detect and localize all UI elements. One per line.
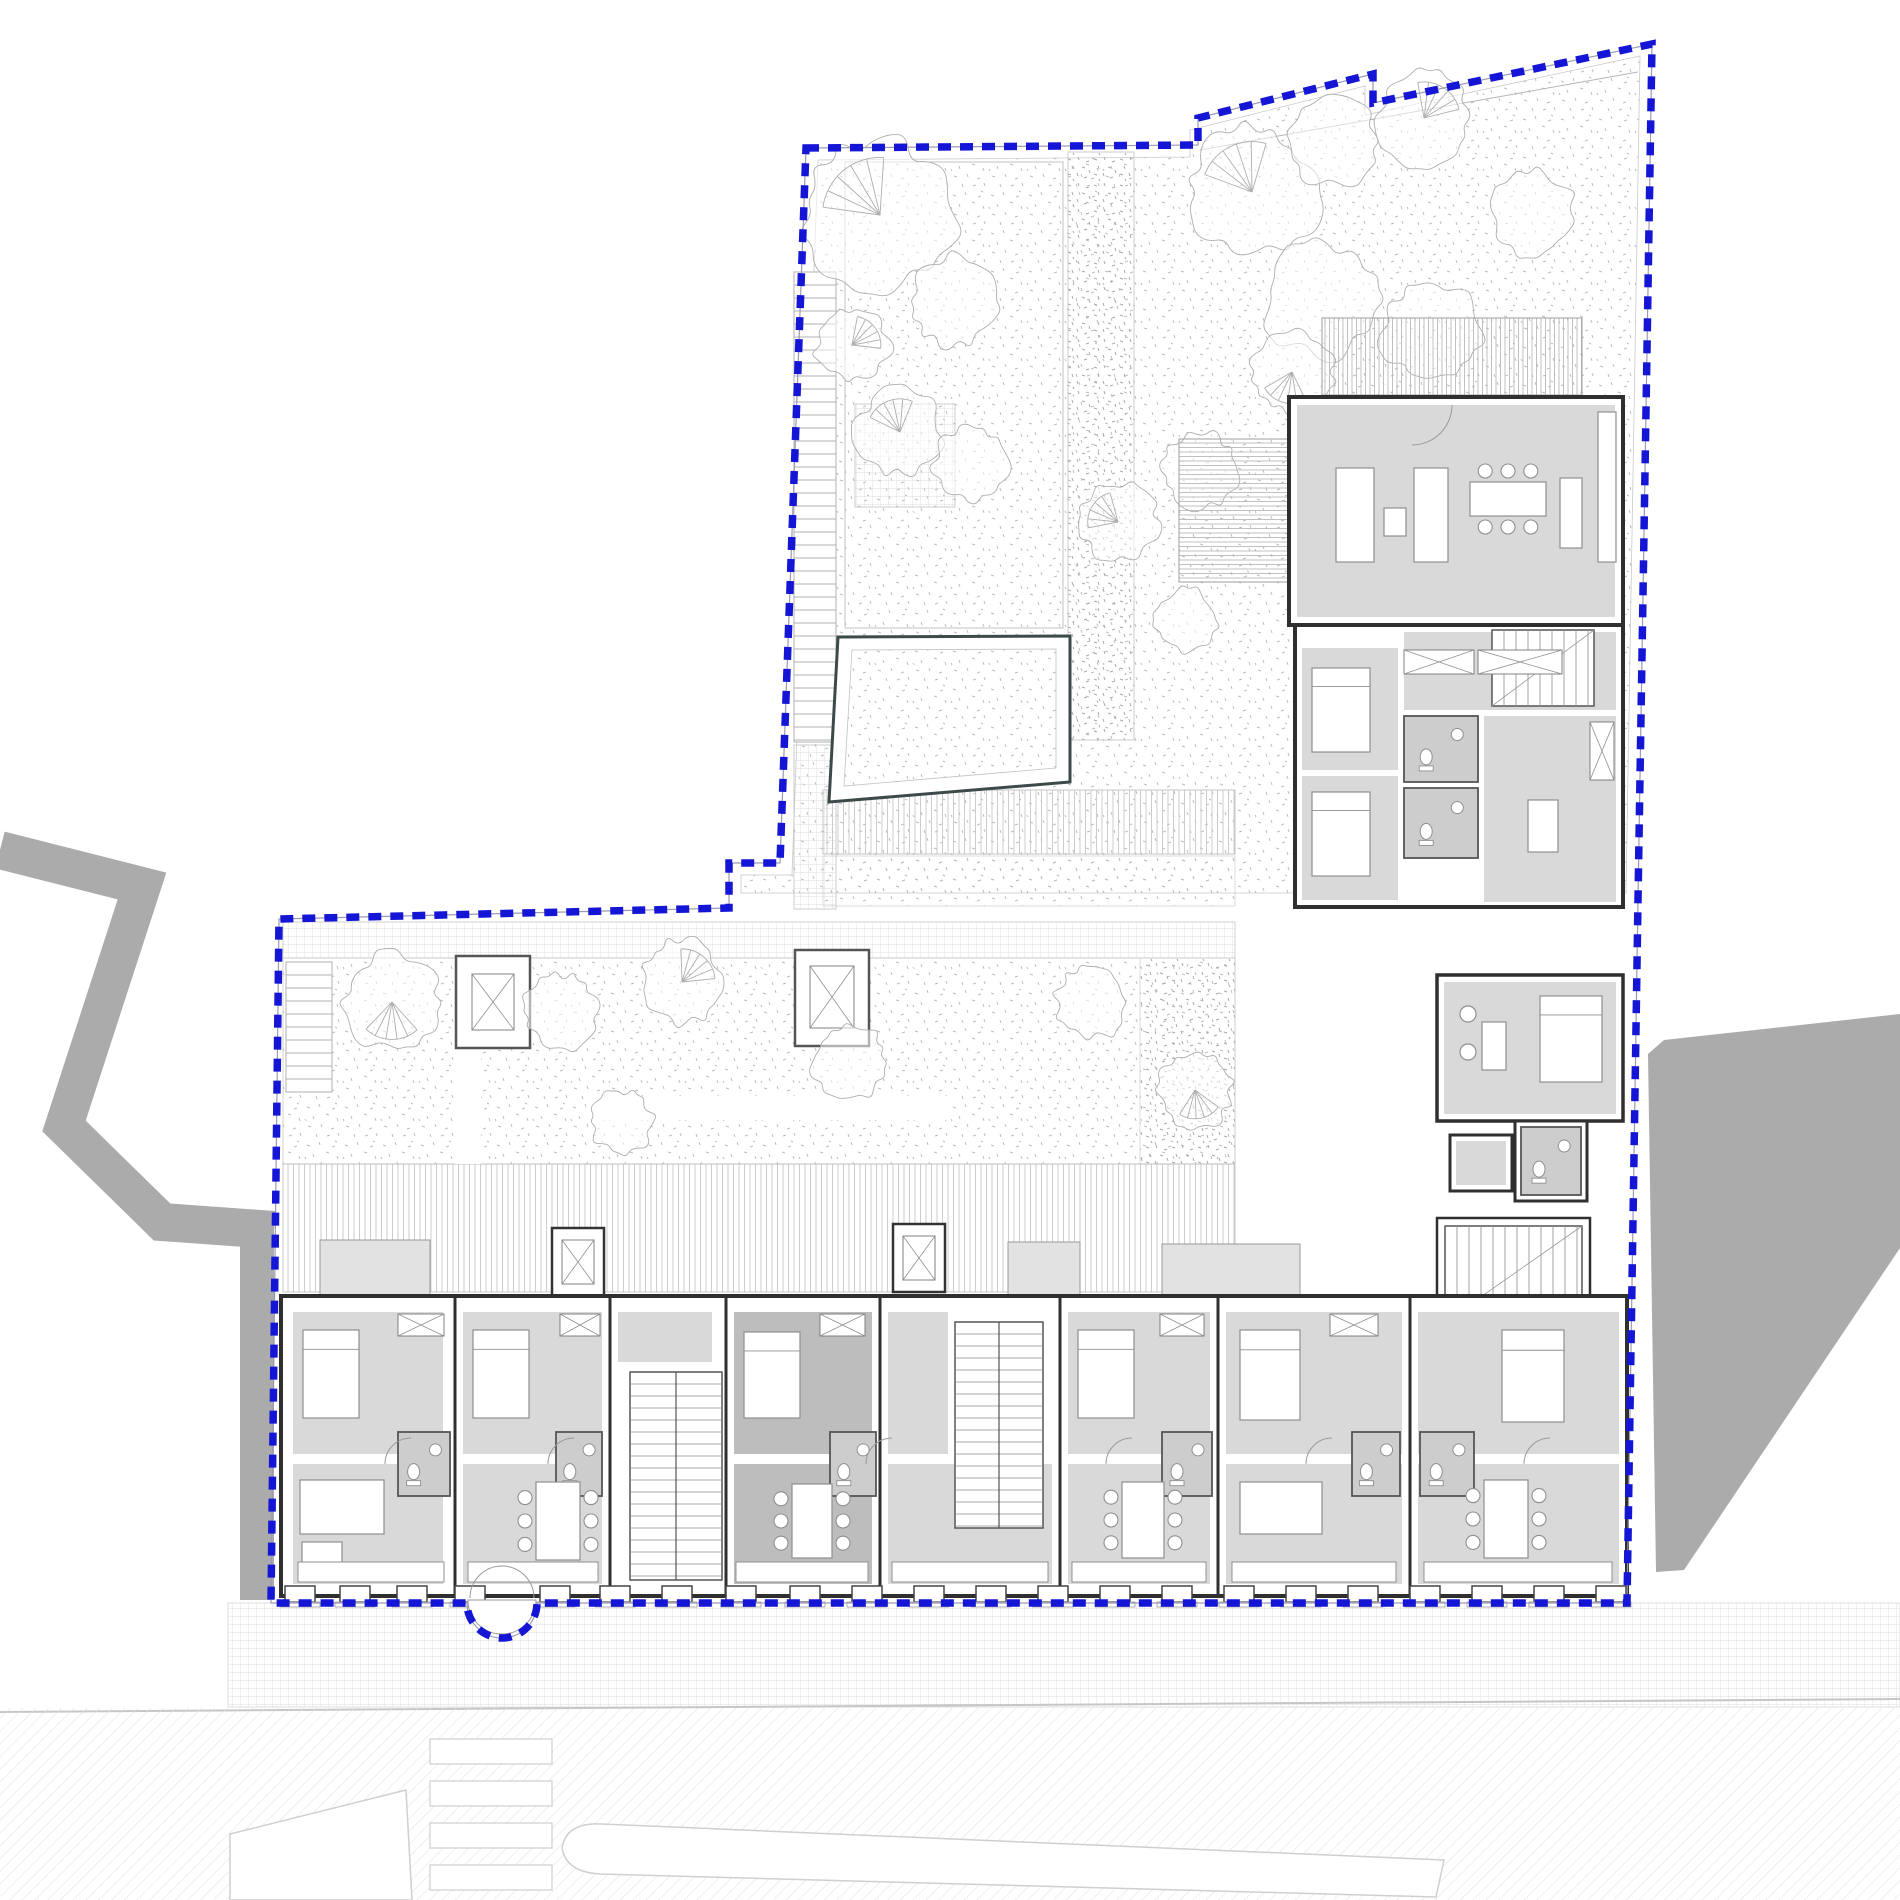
stairwell-1 bbox=[630, 1372, 722, 1580]
toilet-tank bbox=[1429, 1481, 1443, 1486]
wardrobe bbox=[398, 1314, 444, 1336]
bath-room bbox=[830, 1432, 876, 1496]
bed bbox=[744, 1332, 800, 1418]
bed-frame bbox=[1240, 1330, 1300, 1420]
bed bbox=[1240, 1330, 1300, 1420]
crosswalk-stripe bbox=[430, 1781, 552, 1806]
bed-frame bbox=[1540, 996, 1602, 1082]
counter bbox=[892, 1562, 1048, 1582]
stool bbox=[774, 1514, 788, 1528]
stool bbox=[1478, 520, 1492, 534]
stool bbox=[518, 1491, 532, 1505]
room bbox=[888, 1312, 948, 1454]
stool bbox=[1501, 520, 1515, 534]
unit-chair1 bbox=[1460, 1006, 1476, 1022]
villa-sofa2 bbox=[1414, 468, 1448, 562]
sink bbox=[1192, 1444, 1204, 1456]
villa-bed1-bed bbox=[1312, 668, 1370, 752]
tower-a-shaft bbox=[562, 1240, 594, 1284]
dining-table bbox=[518, 1482, 598, 1560]
bed-frame bbox=[744, 1332, 800, 1418]
sofa bbox=[300, 1480, 384, 1534]
bath-room bbox=[1162, 1432, 1212, 1496]
stairwell-2 bbox=[955, 1322, 1043, 1528]
stool bbox=[1466, 1535, 1480, 1549]
bed bbox=[1078, 1330, 1134, 1418]
patio-a bbox=[320, 1240, 430, 1297]
stool bbox=[836, 1514, 850, 1528]
sidewalk-band-mid bbox=[283, 922, 1235, 958]
sink bbox=[583, 1444, 595, 1456]
stool bbox=[518, 1537, 532, 1551]
wardrobe bbox=[820, 1314, 865, 1336]
bed bbox=[473, 1330, 529, 1418]
sink bbox=[857, 1444, 869, 1456]
crosswalk-stripe bbox=[430, 1823, 552, 1848]
stool bbox=[774, 1536, 788, 1550]
stool bbox=[1466, 1489, 1480, 1503]
unit-bath bbox=[1521, 1127, 1581, 1195]
stool bbox=[1104, 1513, 1118, 1527]
unit-table bbox=[1482, 1022, 1506, 1070]
elevator-a bbox=[472, 974, 514, 1030]
villa-dining bbox=[1470, 464, 1546, 534]
villa-north-deck bbox=[1322, 318, 1582, 395]
villa-sofa1 bbox=[1336, 468, 1374, 562]
villa-island bbox=[1560, 478, 1582, 548]
villa-bath2 bbox=[1404, 788, 1478, 858]
toilet bbox=[1420, 749, 1432, 765]
counter bbox=[1424, 1562, 1612, 1582]
crosswalk-stripe bbox=[430, 1739, 552, 1764]
wardrobe bbox=[1330, 1314, 1378, 1336]
sink bbox=[1453, 1444, 1465, 1456]
toilet-tank bbox=[1419, 766, 1433, 771]
sofa bbox=[1240, 1482, 1322, 1534]
bath-room bbox=[398, 1432, 450, 1496]
table-top bbox=[1484, 1480, 1528, 1558]
villa-bath1 bbox=[1404, 716, 1478, 782]
bed-frame bbox=[1312, 792, 1370, 876]
layer-mid-unit bbox=[1437, 975, 1623, 1330]
stool bbox=[1524, 464, 1538, 478]
bed-frame bbox=[473, 1330, 529, 1418]
villa-table3 bbox=[1528, 800, 1558, 852]
toilet bbox=[1430, 1464, 1442, 1480]
bed bbox=[303, 1330, 359, 1418]
layer-street bbox=[0, 1603, 1900, 1900]
bed-frame bbox=[1312, 668, 1370, 752]
stool bbox=[1532, 1489, 1546, 1503]
stool bbox=[836, 1492, 850, 1506]
stool bbox=[1532, 1535, 1546, 1549]
stool bbox=[584, 1491, 598, 1505]
toilet bbox=[1360, 1464, 1372, 1480]
stool bbox=[584, 1514, 598, 1528]
stool bbox=[518, 1514, 532, 1528]
floor-plan-viewport bbox=[0, 0, 1900, 1900]
crosswalk-stripe bbox=[430, 1865, 552, 1890]
patio-b bbox=[1008, 1242, 1080, 1297]
tower-b-shaft bbox=[903, 1236, 935, 1280]
unit-bed bbox=[1540, 996, 1602, 1082]
toilet bbox=[838, 1464, 850, 1480]
toilet bbox=[408, 1464, 420, 1480]
wardrobe bbox=[560, 1314, 600, 1336]
toilet-tank bbox=[407, 1481, 421, 1486]
counter bbox=[468, 1562, 598, 1582]
sink bbox=[429, 1444, 441, 1456]
toilet bbox=[1171, 1464, 1183, 1480]
bathroom bbox=[830, 1432, 876, 1496]
villa-ward2 bbox=[1478, 650, 1562, 674]
bed-frame bbox=[1078, 1330, 1134, 1418]
unit-side-room bbox=[1456, 1141, 1506, 1185]
bath-room bbox=[1352, 1432, 1400, 1496]
deck-band bbox=[823, 790, 1235, 854]
dining-table bbox=[1104, 1482, 1182, 1558]
unit-chair2 bbox=[1460, 1044, 1476, 1060]
villa-bed2-bed bbox=[1312, 792, 1370, 876]
bathroom bbox=[398, 1432, 450, 1496]
gravel-path bbox=[1068, 152, 1134, 740]
gravel-band bbox=[823, 856, 1235, 906]
bed-frame bbox=[1502, 1330, 1564, 1422]
table-top bbox=[1122, 1482, 1164, 1558]
room bbox=[618, 1312, 712, 1362]
villa-ward3 bbox=[1590, 722, 1614, 780]
stool bbox=[1168, 1490, 1182, 1504]
stool bbox=[1104, 1536, 1118, 1550]
villa-ward1 bbox=[1404, 650, 1474, 674]
toilet-tank bbox=[837, 1481, 851, 1486]
garden-steps bbox=[286, 962, 332, 1092]
bathroom bbox=[1420, 1432, 1474, 1496]
pond-inner bbox=[844, 649, 1056, 786]
toilet bbox=[1420, 823, 1432, 839]
stool bbox=[1466, 1512, 1480, 1526]
villa-west-deck bbox=[1179, 439, 1289, 582]
bathroom bbox=[1162, 1432, 1212, 1496]
bed-frame bbox=[303, 1330, 359, 1418]
bed bbox=[1502, 1330, 1564, 1422]
dining-table bbox=[1466, 1480, 1546, 1558]
counter bbox=[1072, 1562, 1206, 1582]
table-top bbox=[1470, 482, 1546, 516]
counter bbox=[736, 1562, 868, 1582]
stool bbox=[774, 1492, 788, 1506]
patio-c bbox=[1162, 1244, 1300, 1297]
bathroom bbox=[1352, 1432, 1400, 1496]
dining-table bbox=[774, 1484, 850, 1558]
stool bbox=[1168, 1513, 1182, 1527]
site-plan-canvas bbox=[0, 0, 1900, 1900]
counter bbox=[298, 1562, 444, 1582]
bath-room bbox=[1420, 1432, 1474, 1496]
stool bbox=[1501, 464, 1515, 478]
road-east bbox=[1648, 1014, 1900, 1572]
toilet-tank bbox=[1359, 1481, 1373, 1486]
plan-layers bbox=[0, 44, 1900, 1900]
wardrobe bbox=[1160, 1314, 1204, 1336]
bath-room bbox=[1404, 716, 1478, 782]
stool bbox=[1168, 1536, 1182, 1550]
toilet bbox=[1533, 1161, 1545, 1177]
elevator-b bbox=[810, 966, 854, 1028]
stool bbox=[1478, 464, 1492, 478]
bath-room bbox=[1521, 1127, 1581, 1195]
sink bbox=[1451, 728, 1463, 740]
villa-coffee-table bbox=[1384, 508, 1406, 536]
toilet-tank bbox=[1170, 1481, 1184, 1486]
stool bbox=[584, 1537, 598, 1551]
sink bbox=[1451, 802, 1463, 814]
sink bbox=[1381, 1444, 1393, 1456]
counter bbox=[1232, 1562, 1396, 1582]
toilet-tank bbox=[1532, 1178, 1546, 1183]
toilet bbox=[564, 1464, 576, 1480]
table-top bbox=[792, 1484, 832, 1558]
stool bbox=[836, 1536, 850, 1550]
stool bbox=[1104, 1490, 1118, 1504]
bath-room bbox=[1404, 788, 1478, 858]
sink bbox=[1558, 1140, 1570, 1152]
stool bbox=[1524, 520, 1538, 534]
toilet-tank bbox=[1419, 840, 1433, 845]
stool bbox=[1532, 1512, 1546, 1526]
villa-counter bbox=[1598, 412, 1616, 562]
road-west bbox=[0, 850, 274, 1230]
table-top bbox=[536, 1482, 580, 1560]
